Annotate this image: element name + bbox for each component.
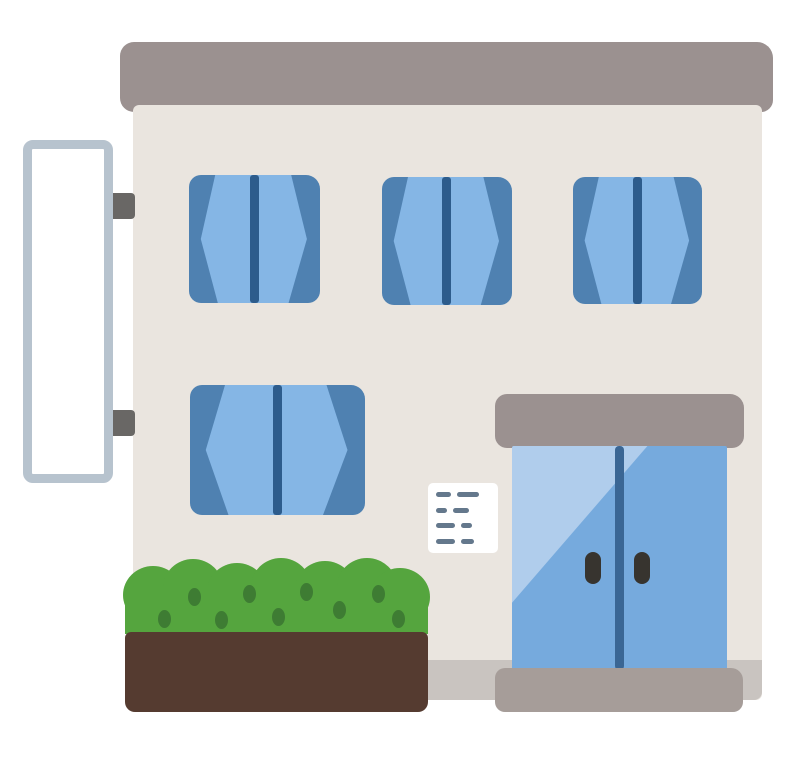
window-center-bar — [250, 175, 259, 303]
window-center-bar — [273, 385, 282, 515]
roof — [120, 42, 773, 112]
hedge-planter — [125, 558, 428, 712]
plaque-text-dash — [457, 492, 479, 497]
hedge-spot — [272, 608, 285, 626]
hedge-spot — [300, 583, 313, 601]
plaque-text-dash — [436, 539, 455, 544]
hedge-spot — [243, 585, 256, 603]
door-divider — [615, 446, 624, 670]
door-handle-right — [634, 552, 650, 584]
hedge-spot — [333, 601, 346, 619]
plaque-text-line — [436, 523, 490, 528]
plaque-text-line — [436, 539, 490, 544]
plaque-text-line — [436, 492, 490, 497]
building-illustration — [0, 0, 800, 770]
planter-box — [125, 632, 428, 712]
hedge-spot — [372, 585, 385, 603]
plaque-text-dash — [453, 508, 469, 513]
window-center-bar — [633, 177, 642, 304]
window-lower-left — [190, 385, 365, 515]
entrance-awning — [495, 394, 744, 448]
plaque-text-dash — [461, 523, 472, 528]
window-upper-left — [189, 175, 320, 303]
plaque-text-dash — [436, 492, 451, 497]
hedge-spot — [188, 588, 201, 606]
plaque-text-dash — [436, 523, 455, 528]
plaque-text-dash — [461, 539, 474, 544]
entrance-step — [495, 668, 743, 712]
signboard — [23, 140, 113, 483]
door-handle-left — [585, 552, 601, 584]
window-upper-right — [573, 177, 702, 304]
plaque-text-line — [436, 508, 490, 513]
hedge-spot — [158, 610, 171, 628]
plaque-text-dash — [436, 508, 447, 513]
notice-plaque — [428, 483, 498, 553]
entrance-door — [512, 446, 727, 670]
hedge-spot — [215, 611, 228, 629]
window-upper-middle — [382, 177, 512, 305]
hedge-spot — [392, 610, 405, 628]
window-center-bar — [442, 177, 451, 305]
